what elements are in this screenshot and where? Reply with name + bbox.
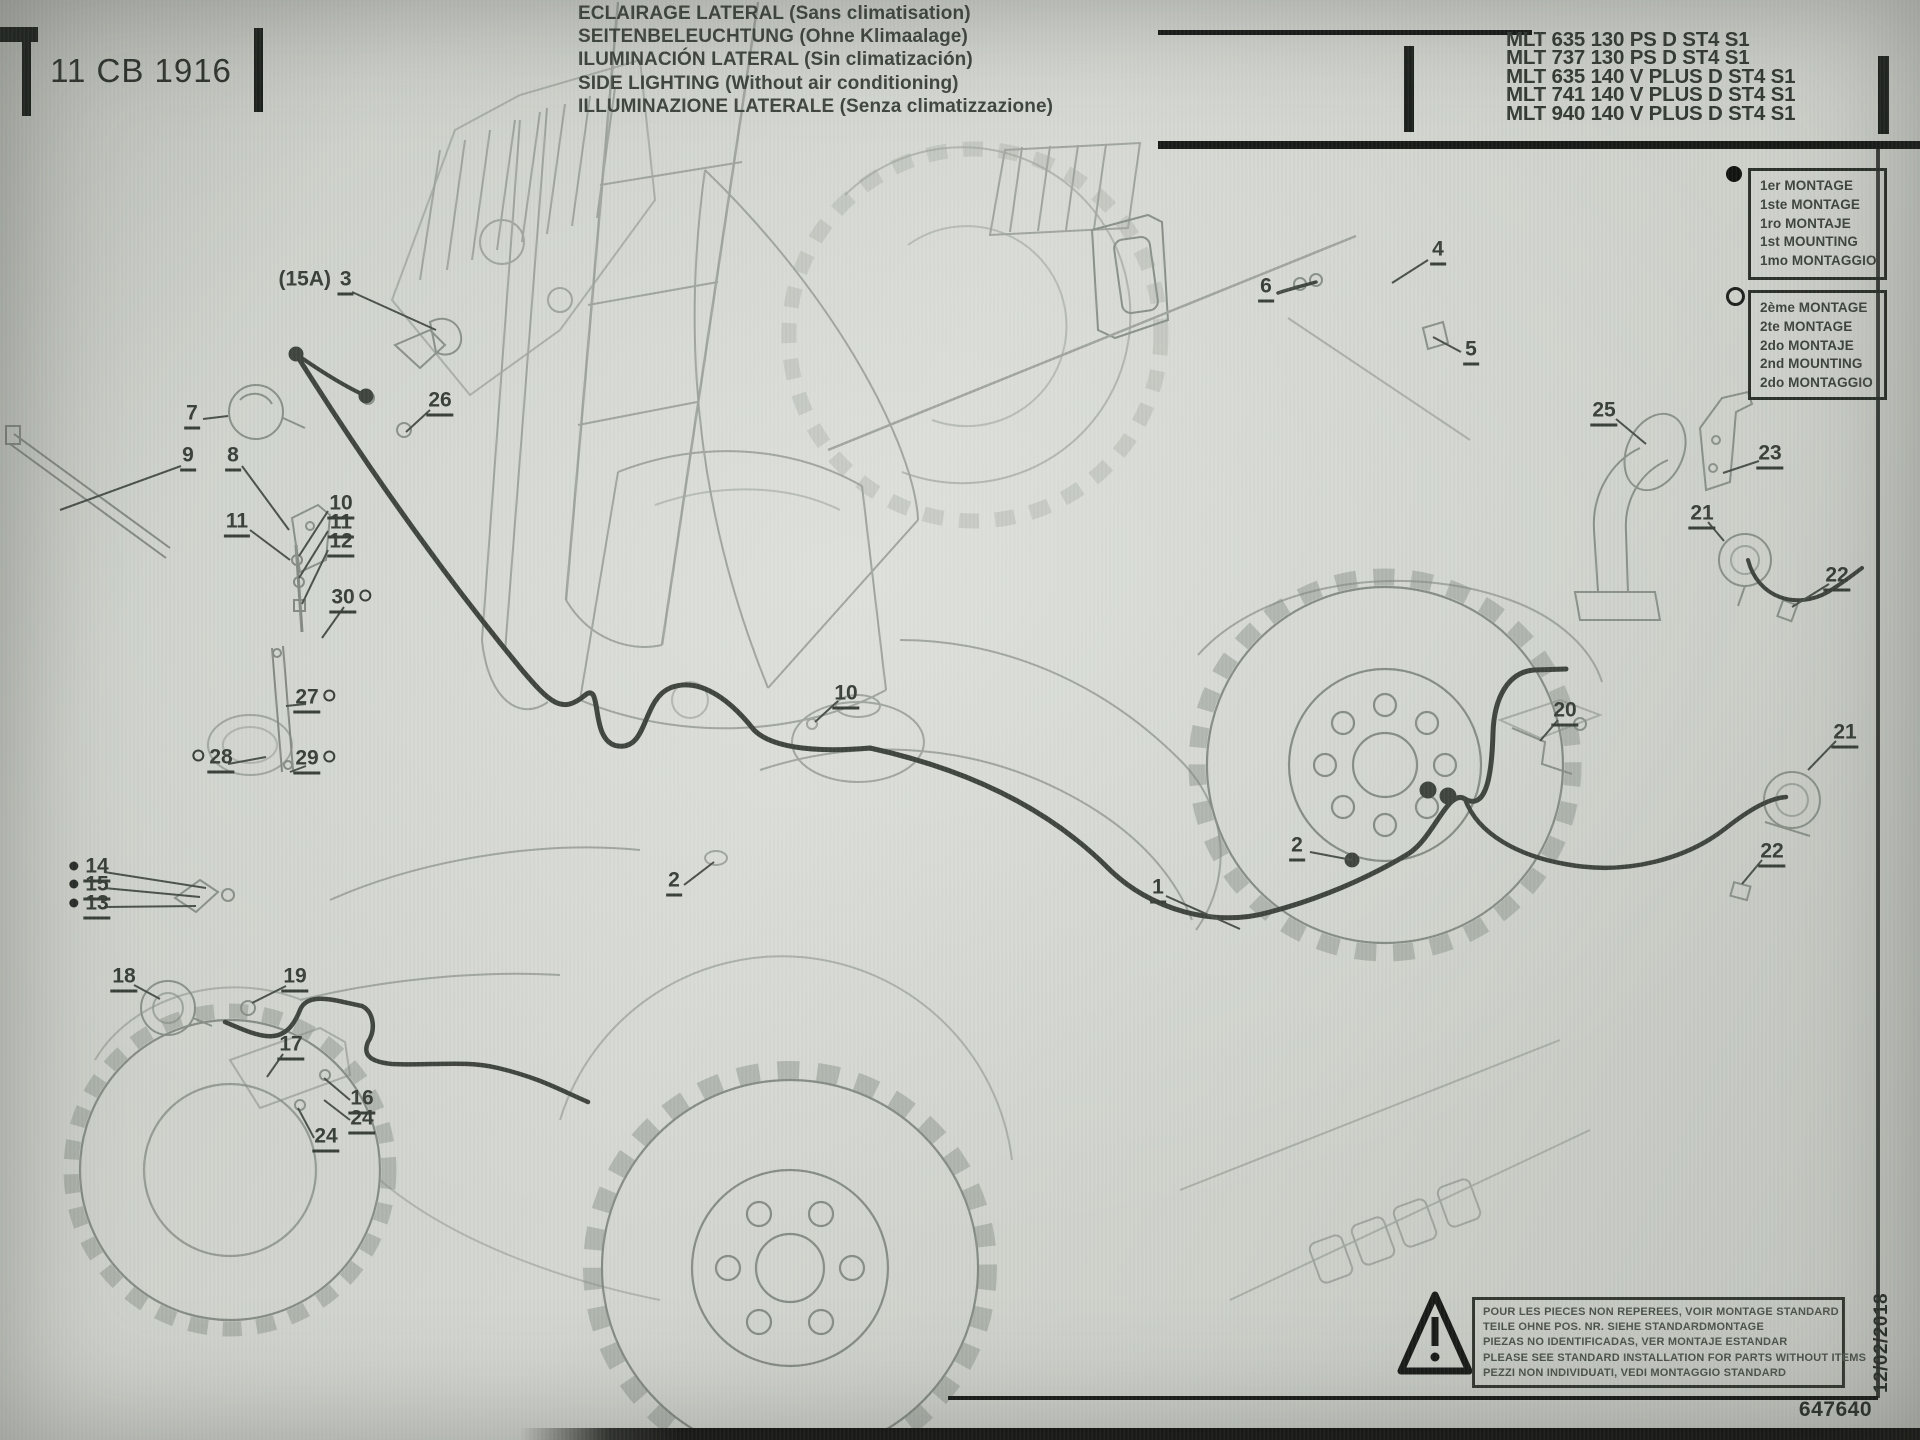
callout-number: 12 <box>327 530 354 558</box>
leader-line <box>250 530 290 560</box>
first-mount-dot-icon <box>69 862 78 871</box>
second-mount-lines-line: 2do MONTAGGIO <box>1760 374 1878 393</box>
second-mount-lines-line: 2ème MONTAGE <box>1760 299 1878 318</box>
page-date: 12/02/2018 <box>1871 1285 1893 1393</box>
document-number: 647640 <box>1750 1398 1872 1422</box>
leader-line <box>1392 260 1428 283</box>
photo-bottom-edge <box>520 1428 1920 1440</box>
part-callout-19: 19 <box>281 966 308 987</box>
callout-number: 23 <box>1756 442 1783 470</box>
part-callout-26: 26 <box>426 390 453 411</box>
first-mount-lines-line: 1st MOUNTING <box>1760 233 1878 252</box>
leader-line <box>684 862 714 885</box>
part-callout-25: 25 <box>1590 400 1617 421</box>
callout-number: 21 <box>1688 502 1715 530</box>
first-mount-dot-icon <box>1726 166 1742 182</box>
callout-number: 2 <box>1289 834 1305 862</box>
callout-number: 13 <box>83 892 110 920</box>
header-separator-line <box>1158 141 1920 149</box>
callout-number: 6 <box>1258 275 1274 303</box>
callout-number: 3 <box>338 268 354 296</box>
model-list-line: MLT 940 140 V PLUS D ST4 S1 <box>1506 105 1795 123</box>
warning-note: POUR LES PIECES NON REPEREES, VOIR MONTA… <box>1472 1297 1845 1388</box>
first-mount-dot-icon <box>69 899 78 908</box>
title-block-line: SEITENBELEUCHTUNG (Ohne Klimaalage) <box>578 25 1053 48</box>
part-callout-17: 17 <box>277 1034 304 1055</box>
callout-number: 22 <box>1758 840 1785 868</box>
title-block-line: SIDE LIGHTING (Without air conditioning) <box>578 72 1053 95</box>
first-mount-lines-line: 1mo MONTAGGIO <box>1760 252 1878 271</box>
part-callout-18: 18 <box>110 966 137 987</box>
leader-line <box>299 531 328 578</box>
part-callout-12: 12 <box>327 531 354 552</box>
part-callout-22: 22 <box>1823 565 1850 586</box>
model-left-bar <box>1404 46 1414 132</box>
part-callout-11: 11 <box>224 511 250 532</box>
callout-number: 30 <box>329 586 356 614</box>
part-callout-6: 6 <box>1258 276 1274 297</box>
leader-line <box>134 985 160 999</box>
second-mount-ring-icon <box>324 690 336 702</box>
callout-number: 24 <box>312 1125 339 1153</box>
callout-number: 26 <box>426 389 453 417</box>
callout-number: 1 <box>1150 876 1166 904</box>
leader-line <box>1723 461 1759 473</box>
part-callout-13: 13 <box>69 893 110 914</box>
callout-number: 25 <box>1590 399 1617 427</box>
page-reference: 11 CB 1916 <box>34 52 248 90</box>
first-mount-legend: 1er MONTAGE1ste MONTAGE1ro MONTAJE1st MO… <box>1748 168 1887 280</box>
part-callout-30: 30 <box>329 587 374 608</box>
second-mount-lines-line: 2nd MOUNTING <box>1760 355 1878 374</box>
leader-line <box>60 466 181 510</box>
warning-text-line: PEZZI NON INDIVIDUATI, VEDI MONTAGGIO ST… <box>1483 1366 1835 1381</box>
title-block: ECLAIRAGE LATERAL (Sans climatisation)SE… <box>578 2 1053 118</box>
part-callout-9: 9 <box>180 445 196 466</box>
second-mount-lines-line: 2do MONTAJE <box>1760 337 1878 356</box>
part-callout-5: 5 <box>1463 339 1479 360</box>
part-callout-24: 24 <box>312 1126 339 1147</box>
part-callout-10: 10 <box>832 683 859 704</box>
model-list: MLT 635 130 PS D ST4 S1MLT 737 130 PS D … <box>1506 31 1795 123</box>
second-mount-ring-icon <box>360 590 372 602</box>
callout-number: 20 <box>1551 699 1578 727</box>
leader-line <box>352 292 436 330</box>
leader-line <box>104 906 196 907</box>
callout-number: 29 <box>293 747 320 775</box>
callout-number: 9 <box>180 444 196 472</box>
part-callout-3: (15A) 3 <box>278 269 353 290</box>
part-callout-7: 7 <box>184 403 200 424</box>
callout-number: 18 <box>110 965 137 993</box>
part-callout-4: 4 <box>1430 239 1446 260</box>
leader-line <box>104 872 206 888</box>
leader-line <box>203 416 228 419</box>
part-callout-22: 22 <box>1758 841 1785 862</box>
first-mount-lines-line: 1er MONTAGE <box>1760 177 1878 196</box>
ref-left-bar <box>22 36 31 116</box>
second-mount-lines-line: 2te MONTAGE <box>1760 318 1878 337</box>
second-mount-lines: 2ème MONTAGE2te MONTAGE2do MONTAJE2nd MO… <box>1760 299 1878 393</box>
leader-line <box>302 550 328 604</box>
part-callout-2: 2 <box>1289 835 1305 856</box>
part-callout-1: 1 <box>1150 877 1166 898</box>
warning-text-line: POUR LES PIECES NON REPEREES, VOIR MONTA… <box>1483 1305 1835 1320</box>
second-mount-ring-icon <box>1726 287 1745 306</box>
warning-text: POUR LES PIECES NON REPEREES, VOIR MONTA… <box>1483 1305 1835 1381</box>
warning-text-line: PIEZAS NO IDENTIFICADAS, VER MONTAJE EST… <box>1483 1335 1835 1350</box>
header-top-line <box>1158 30 1532 35</box>
part-callout-21: 21 <box>1831 722 1858 743</box>
model-right-bar <box>1878 56 1889 134</box>
part-callout-27: 27 <box>293 687 338 708</box>
warning-triangle-icon <box>1401 1295 1469 1371</box>
first-mount-lines-line: 1ro MONTAJE <box>1760 215 1878 234</box>
callout-number: 19 <box>281 965 308 993</box>
title-block-line: ECLAIRAGE LATERAL (Sans climatisation) <box>578 2 1053 25</box>
leader-line <box>324 1100 350 1120</box>
callout-number: 27 <box>293 686 320 714</box>
part-callout-23: 23 <box>1756 443 1783 464</box>
part-callout-24: 24 <box>348 1108 375 1129</box>
callout-number: 4 <box>1430 238 1446 266</box>
part-callout-8: 8 <box>225 445 241 466</box>
callout-number: 22 <box>1823 564 1850 592</box>
leader-line <box>324 1078 350 1100</box>
callout-number: 21 <box>1831 721 1858 749</box>
first-mount-lines-line: 1ste MONTAGE <box>1760 196 1878 215</box>
callout-number: 11 <box>224 510 250 538</box>
part-callout-2: 2 <box>666 870 682 891</box>
part-callout-28: 28 <box>189 747 234 768</box>
second-mount-ring-icon <box>192 750 204 762</box>
leader-line <box>299 511 328 556</box>
callout-number: 28 <box>207 746 234 774</box>
callout-number: 8 <box>225 444 241 472</box>
footer-line <box>948 1396 1878 1400</box>
ref-right-bar <box>254 28 263 112</box>
machine-line-art <box>0 0 1920 1440</box>
warning-text-line: TEILE OHNE POS. NR. SIEHE STANDARDMONTAG… <box>1483 1320 1835 1335</box>
callout-number: 7 <box>184 402 200 430</box>
part-callout-29: 29 <box>293 748 338 769</box>
first-mount-lines: 1er MONTAGE1ste MONTAGE1ro MONTAJE1st MO… <box>1760 177 1878 271</box>
callout-number: 24 <box>348 1107 375 1135</box>
callout-number: 2 <box>666 869 682 897</box>
second-mount-legend: 2ème MONTAGE2te MONTAGE2do MONTAJE2nd MO… <box>1748 290 1887 400</box>
part-callout-21: 21 <box>1688 503 1715 524</box>
callout-number: 17 <box>277 1033 304 1061</box>
second-mount-ring-icon <box>324 751 336 763</box>
page-corner-mark <box>0 27 38 42</box>
title-block-line: ILUMINACIÓN LATERAL (Sin climatización) <box>578 48 1053 71</box>
part-callout-20: 20 <box>1551 700 1578 721</box>
callout-number: 5 <box>1463 338 1479 366</box>
callout-prefix: (15A) <box>278 268 337 291</box>
title-block-line: ILLUMINAZIONE LATERALE (Senza climatizza… <box>578 95 1053 118</box>
callout-number: 10 <box>832 682 859 710</box>
warning-text-line: PLEASE SEE STANDARD INSTALLATION FOR PAR… <box>1483 1351 1835 1366</box>
part-callout-16: 16 <box>348 1088 375 1109</box>
parts-diagram-page: 11 CB 1916 ECLAIRAGE LATERAL (Sans clima… <box>0 0 1920 1440</box>
leader-line <box>1166 896 1240 929</box>
first-mount-dot-icon <box>69 880 78 889</box>
